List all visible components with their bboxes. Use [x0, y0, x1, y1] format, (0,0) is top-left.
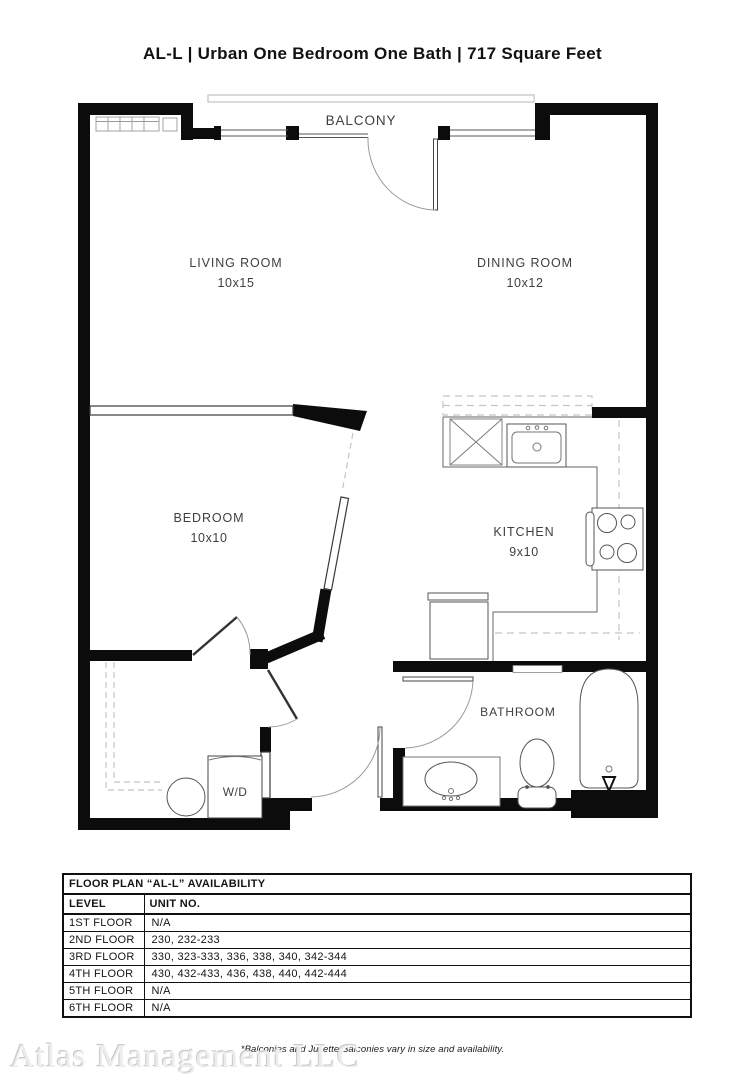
bedroom-dims: 10x10 — [190, 531, 227, 545]
bathroom-door — [403, 677, 473, 748]
balcony-door — [368, 137, 438, 210]
dining-room-dims: 10x12 — [506, 276, 543, 290]
angled-bedroom-wall — [264, 595, 325, 659]
laundry-label: W/D — [223, 785, 248, 799]
kitchen-dims: 9x10 — [509, 545, 539, 559]
baseboard-heater — [96, 117, 177, 131]
bathtub — [580, 669, 638, 791]
table-title: FLOOR PLAN “AL-L” AVAILABILITY — [63, 874, 691, 894]
water-heater — [167, 778, 205, 816]
level-cell: 4TH FLOOR — [63, 966, 144, 983]
stove — [586, 508, 643, 570]
column-header-unit-no: UNIT NO. — [144, 894, 691, 914]
floor-plan-page: AL-L | Urban One Bedroom One Bath | 717 … — [0, 0, 745, 1080]
level-cell: 6TH FLOOR — [63, 1000, 144, 1018]
table-row: 6TH FLOOR N/A — [63, 1000, 691, 1018]
entry-door — [311, 727, 382, 797]
table-title-row: FLOOR PLAN “AL-L” AVAILABILITY — [63, 874, 691, 894]
floor-plan-drawing: BALCONY LIVING ROOM 10x15 DINING ROOM 10… — [0, 0, 745, 860]
bedroom-label: BEDROOM — [174, 511, 245, 525]
watermark: Atlas Management LLC — [10, 1038, 360, 1076]
table-row: 3RD FLOOR 330, 323-333, 336, 338, 340, 3… — [63, 949, 691, 966]
bathroom-vanity — [403, 757, 500, 806]
living-room-label: LIVING ROOM — [189, 256, 282, 270]
level-cell: 5TH FLOOR — [63, 983, 144, 1000]
units-cell: N/A — [144, 1000, 691, 1018]
level-cell: 3RD FLOOR — [63, 949, 144, 966]
level-cell: 1ST FLOOR — [63, 914, 144, 932]
units-cell: 330, 323-333, 336, 338, 340, 342-344 — [144, 949, 691, 966]
kitchen-sink — [507, 424, 566, 467]
living-room-dims: 10x15 — [217, 276, 254, 290]
balcony-windows — [221, 130, 535, 138]
units-cell: N/A — [144, 983, 691, 1000]
table-header-row: LEVEL UNIT NO. — [63, 894, 691, 914]
units-cell: 230, 232-233 — [144, 932, 691, 949]
dishwasher — [450, 419, 502, 465]
level-cell: 2ND FLOOR — [63, 932, 144, 949]
units-cell: 430, 432-433, 436, 438, 440, 442-444 — [144, 966, 691, 983]
availability-table: FLOOR PLAN “AL-L” AVAILABILITY LEVEL UNI… — [62, 873, 692, 1018]
balcony-label: BALCONY — [326, 113, 397, 128]
bedroom-door — [193, 617, 250, 655]
refrigerator — [428, 593, 488, 659]
table-row: 5TH FLOOR N/A — [63, 983, 691, 1000]
column-header-level: LEVEL — [63, 894, 144, 914]
balcony-railing — [208, 95, 534, 102]
table-row: 1ST FLOOR N/A — [63, 914, 691, 932]
toilet — [518, 739, 556, 808]
laundry-door — [268, 670, 297, 727]
units-cell: N/A — [144, 914, 691, 932]
table-row: 2ND FLOOR 230, 232-233 — [63, 932, 691, 949]
kitchen-label: KITCHEN — [493, 525, 554, 539]
dining-room-label: DINING ROOM — [477, 256, 573, 270]
table-row: 4TH FLOOR 430, 432-433, 436, 438, 440, 4… — [63, 966, 691, 983]
bathroom-label: BATHROOM — [480, 705, 556, 719]
